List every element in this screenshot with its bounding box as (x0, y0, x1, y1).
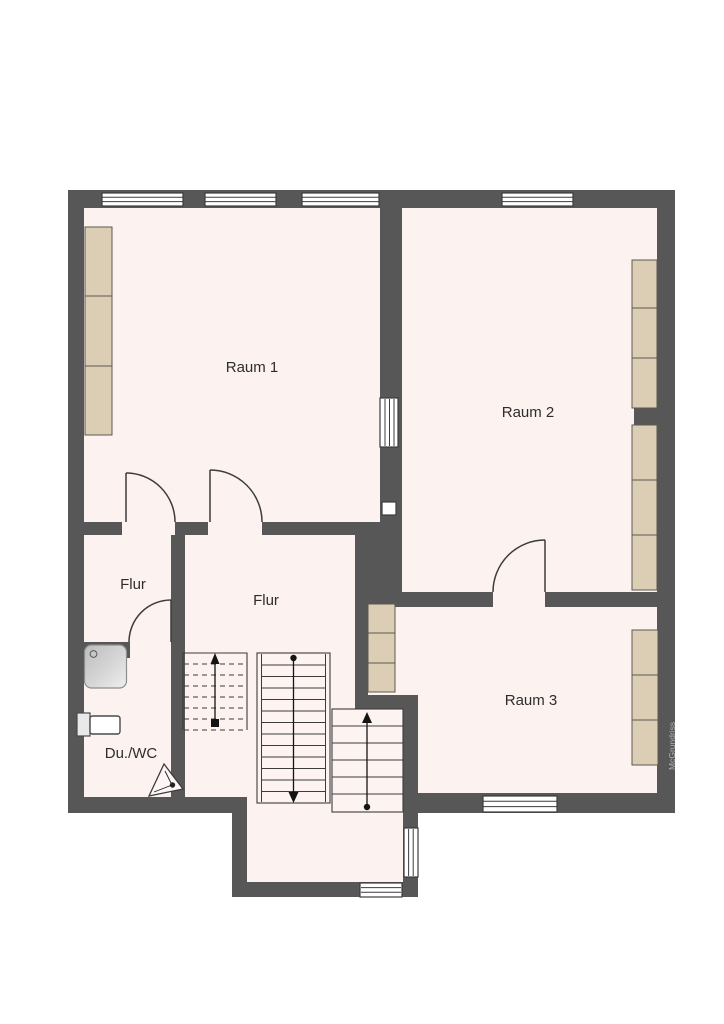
label-raum-2: Raum 2 (502, 404, 555, 421)
window-top-4 (502, 193, 573, 206)
furniture-raum2-east-lower (632, 425, 657, 590)
label-raum-3: Raum 3 (505, 692, 558, 709)
label-du-wc: Du./WC (105, 745, 158, 762)
floorplan-svg: Raum 1 Raum 2 Raum 3 Flur Flur Du./WC Mc… (0, 0, 724, 1024)
wall-stub-raum2 (634, 408, 657, 425)
window-top-3 (302, 193, 379, 206)
window-vestibule-south (360, 883, 402, 897)
window-raum3-south (483, 796, 557, 812)
raum3-floor-lower (418, 695, 657, 793)
furniture-raum2-east-upper (632, 260, 657, 408)
shower-tray-icon (85, 645, 127, 688)
window-partition-raum1-raum2 (380, 398, 398, 447)
door-opening-raum1-flur-west (122, 522, 175, 535)
furniture-raum3-west (368, 604, 395, 692)
stair-flight-main (257, 653, 330, 803)
stair-flight-lower (332, 709, 403, 812)
furniture-raum1-west (85, 227, 112, 435)
floorplan-canvas: Raum 1 Raum 2 Raum 3 Flur Flur Du./WC Mc… (0, 0, 724, 1024)
door-opening-flur-duwc (130, 642, 171, 658)
window-vestibule-east (404, 828, 418, 877)
label-flur-center: Flur (253, 592, 279, 609)
raum2-floor (402, 208, 657, 592)
toilet-icon (77, 713, 120, 736)
door-opening-raum1-flur-center (208, 522, 262, 535)
door-opening-raum2-raum3 (493, 592, 545, 607)
label-raum-1: Raum 1 (226, 359, 279, 376)
window-top-2 (205, 193, 276, 206)
wall-niche-square (382, 502, 396, 515)
raum3-floor-upper (368, 607, 657, 695)
label-flur-west: Flur (120, 576, 146, 593)
furniture-raum3-east (632, 630, 658, 765)
window-top-1 (102, 193, 183, 206)
watermark-text: McGrundriss (667, 722, 677, 770)
